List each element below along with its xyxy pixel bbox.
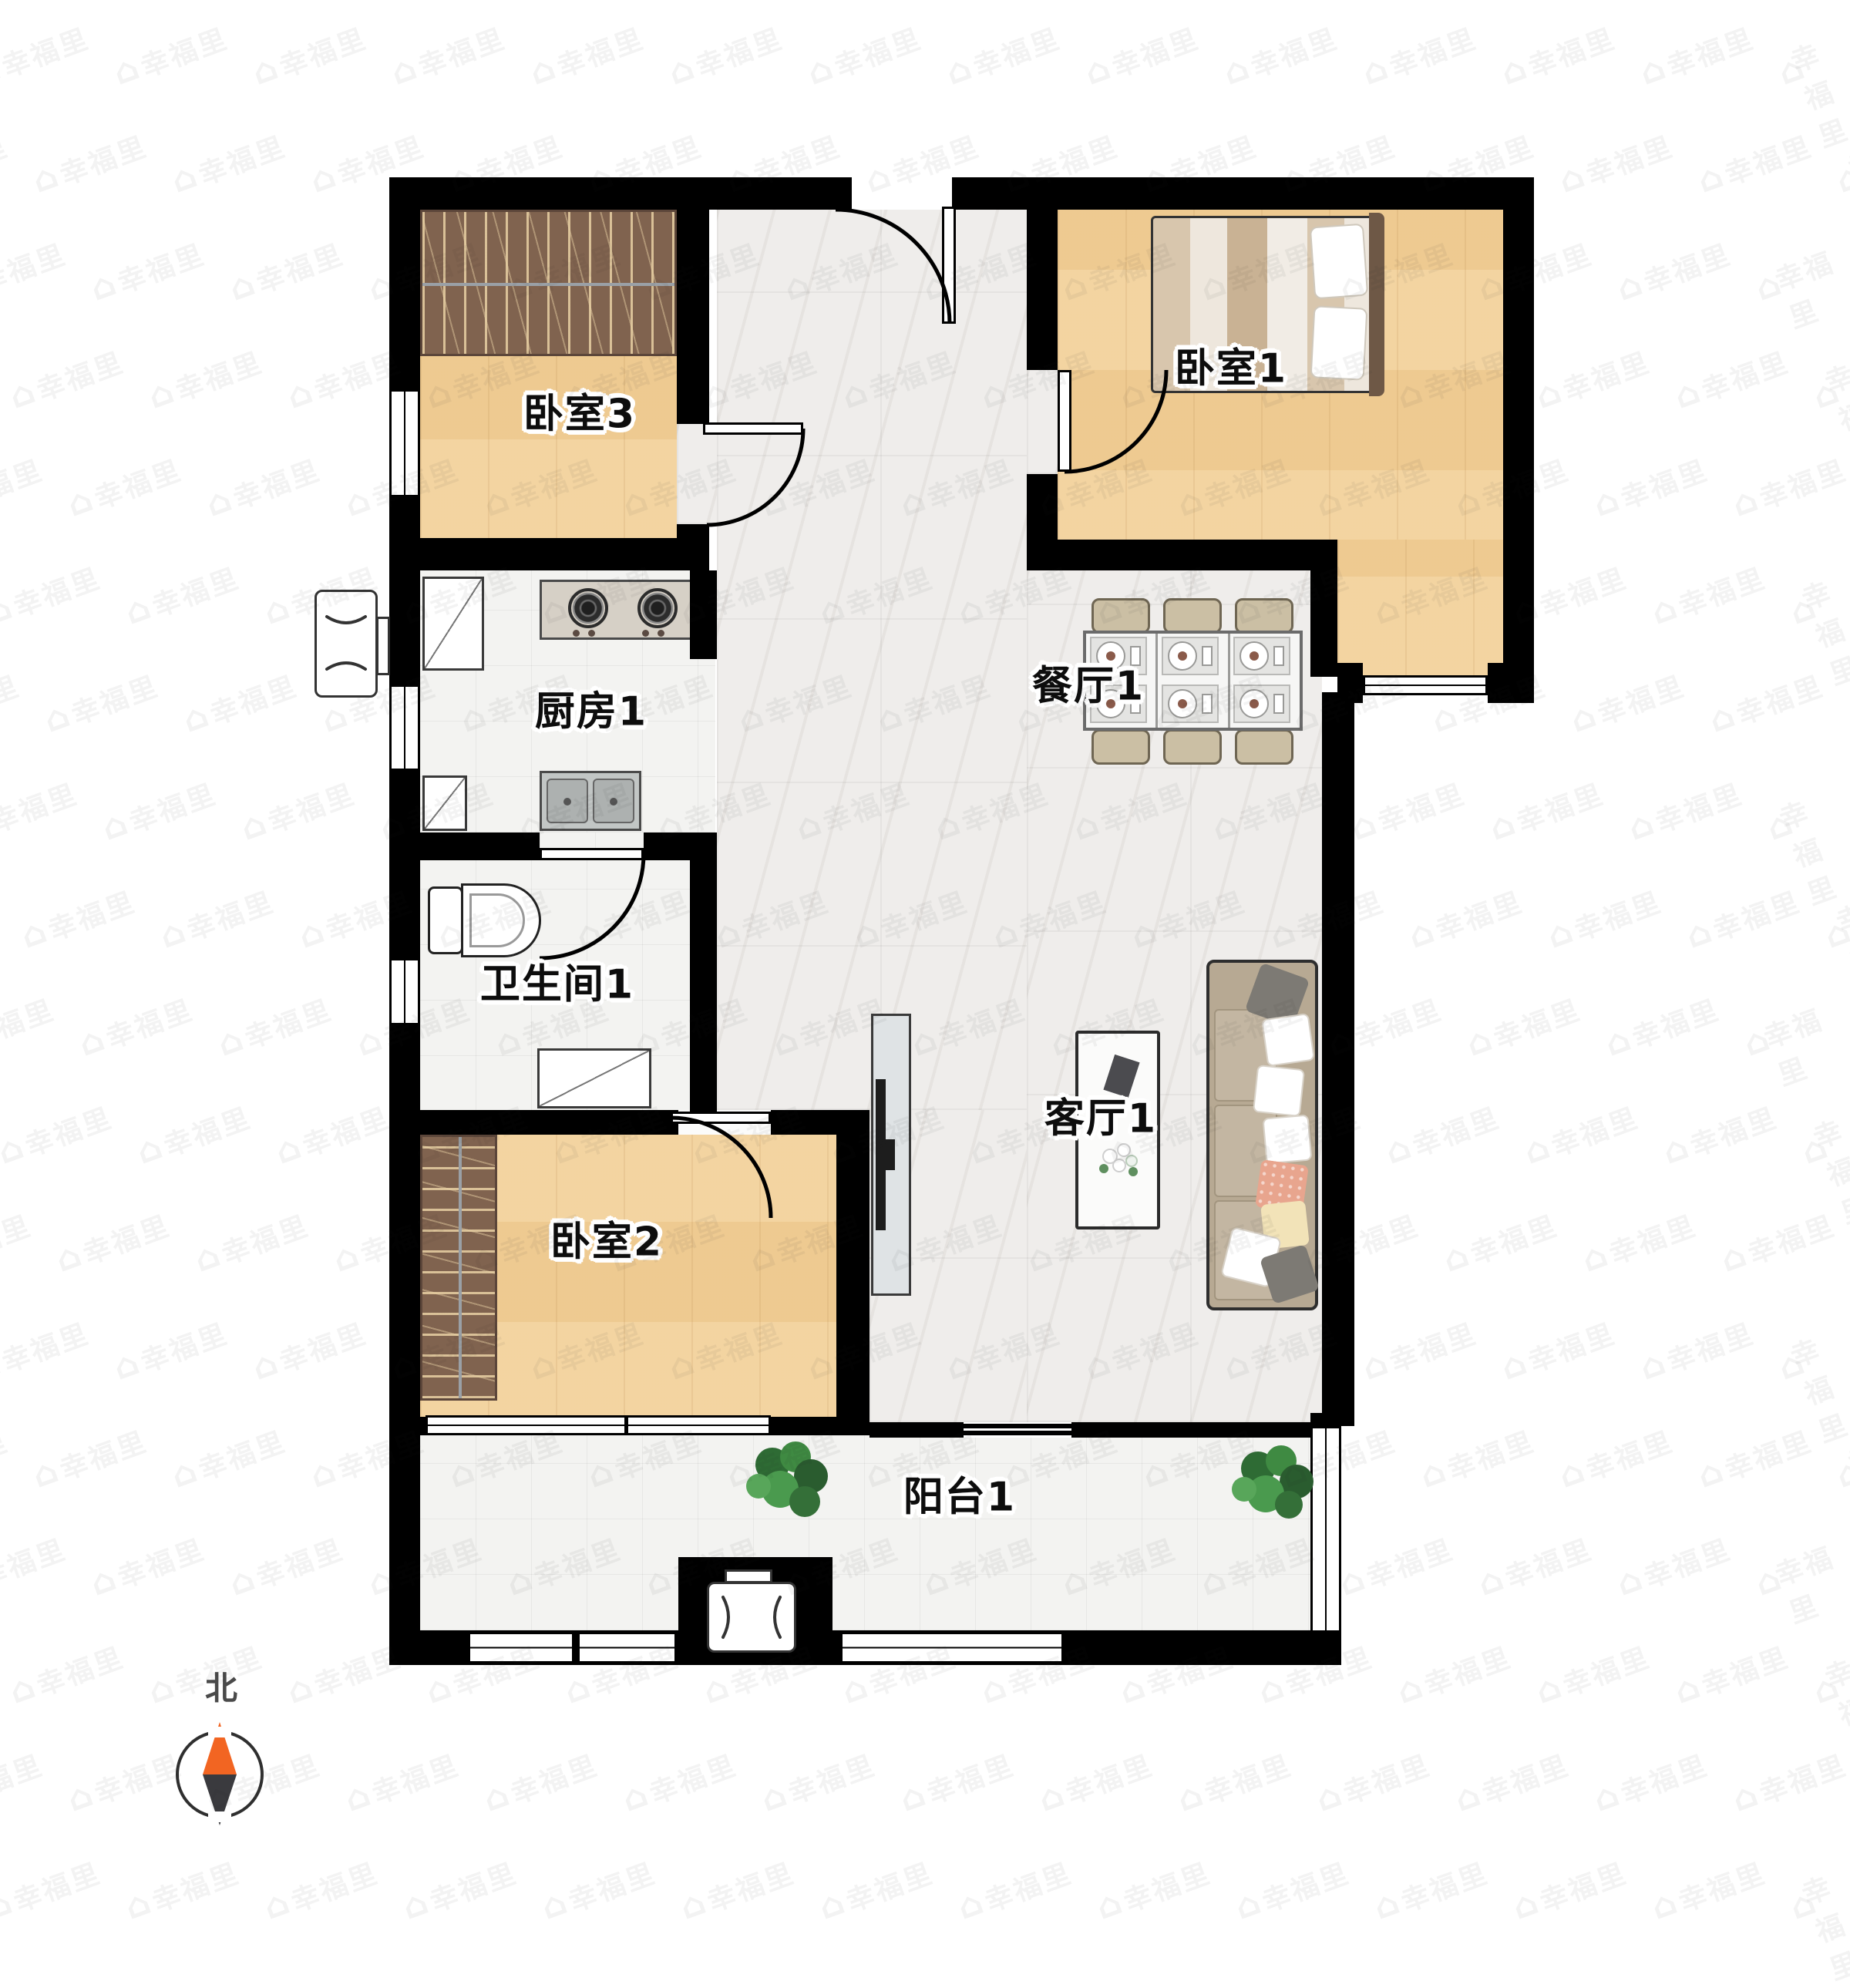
compass-gap xyxy=(208,1727,231,1737)
watermark-text: 幸福里 xyxy=(1534,1852,1633,1920)
floor-plan: 卧室3 卧室1 厨房1 餐厅1 卫生间1 卧室2 客厅1 阳台1 北 幸福里⌂幸… xyxy=(0,0,1850,1850)
watermark-text: 幸福里 xyxy=(146,1852,245,1920)
house-icon: ⌂ xyxy=(258,1882,294,1928)
house-icon: ⌂ xyxy=(1368,1882,1404,1928)
house-icon: ⌂ xyxy=(536,1882,572,1928)
watermark-text: 幸福里 xyxy=(840,1852,939,1920)
entry-door-arc xyxy=(836,210,950,324)
plan-overlay xyxy=(0,0,1850,1850)
watermark-text: 幸福里 xyxy=(1118,1852,1216,1920)
watermark-text: 幸福里 xyxy=(563,1852,661,1920)
north-label: 北 xyxy=(205,1663,237,1710)
watermark-text: 幸福里 xyxy=(424,1852,523,1920)
watermark-text: 幸福里 xyxy=(1673,1852,1771,1920)
house-icon: ⌂ xyxy=(674,1882,711,1928)
bedroom3-label: 卧室3 xyxy=(523,382,636,439)
balcony-label: 阳台1 xyxy=(903,1465,1016,1522)
kitchen-label: 厨房1 xyxy=(535,679,647,737)
watermark-text: 幸福里 xyxy=(1796,1863,1850,1988)
watermark-text: 幸福里 xyxy=(285,1852,384,1920)
ac-squiggle xyxy=(723,1597,728,1637)
bathroom-label: 卫生间1 xyxy=(480,952,634,1010)
bedroom2-label: 卧室2 xyxy=(550,1209,663,1267)
dining-label: 餐厅1 xyxy=(1032,654,1145,711)
plant-icon xyxy=(746,1441,828,1517)
ac-squiggle xyxy=(327,617,365,623)
house-icon: ⌂ xyxy=(119,1882,156,1928)
house-icon: ⌂ xyxy=(952,1882,988,1928)
house-icon: ⌂ xyxy=(1091,1882,1127,1928)
house-icon: ⌂ xyxy=(813,1882,849,1928)
house-icon: ⌂ xyxy=(1784,1882,1821,1928)
living-label: 客厅1 xyxy=(1044,1086,1157,1144)
bedroom1-label: 卧室1 xyxy=(1175,336,1287,394)
compass-gap xyxy=(208,1811,231,1822)
watermark-text: 幸福里 xyxy=(8,1852,106,1920)
house-icon: ⌂ xyxy=(1646,1882,1682,1928)
bedroom2-door-arc xyxy=(671,1118,771,1218)
bathroom-door-arc xyxy=(540,854,644,958)
watermark-text: 幸福里 xyxy=(979,1852,1078,1920)
house-icon: ⌂ xyxy=(1507,1882,1543,1928)
bedroom3-door-arc xyxy=(707,429,803,525)
ac-squiggle xyxy=(775,1597,780,1637)
plant-icon xyxy=(1232,1445,1313,1519)
bedroom1-door-arc xyxy=(1065,370,1166,472)
watermark-text: 幸福里 xyxy=(701,1852,800,1920)
watermark-text: 幸福里 xyxy=(1395,1852,1494,1920)
house-icon: ⌂ xyxy=(397,1882,433,1928)
ac-squiggle xyxy=(327,663,365,669)
house-icon: ⌂ xyxy=(1229,1882,1266,1928)
watermark-text: 幸福里 xyxy=(1256,1852,1355,1920)
compass-circle xyxy=(176,1731,264,1818)
house-icon: ⌂ xyxy=(0,1882,17,1928)
flower-decor xyxy=(1099,1144,1138,1176)
